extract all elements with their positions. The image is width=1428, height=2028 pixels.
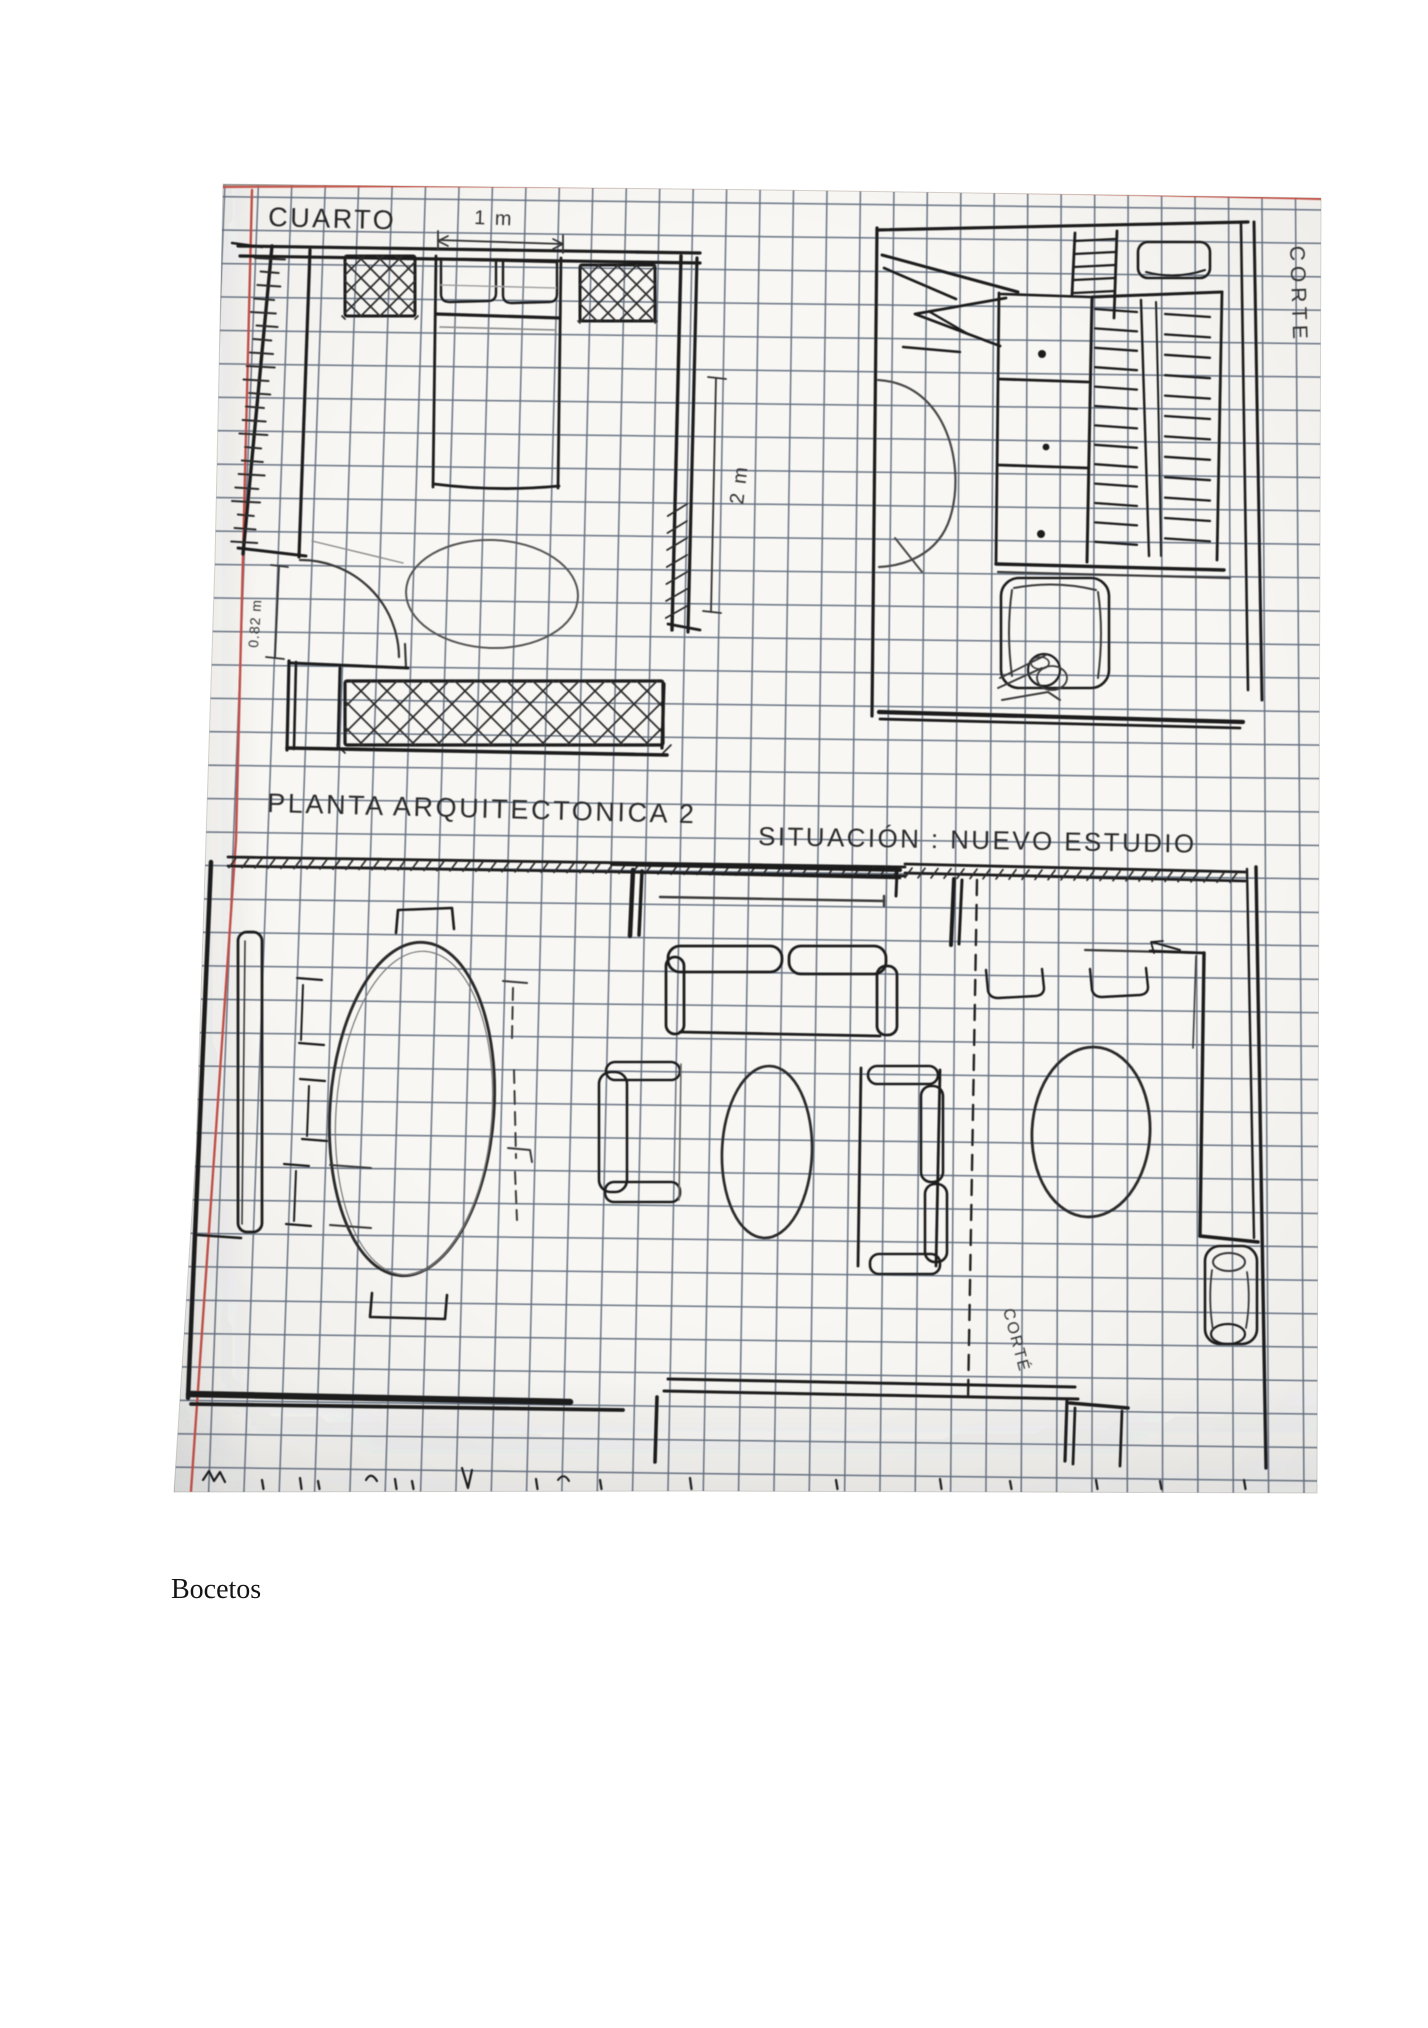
svg-text:Bocetos: Bocetos: [171, 1574, 261, 1605]
